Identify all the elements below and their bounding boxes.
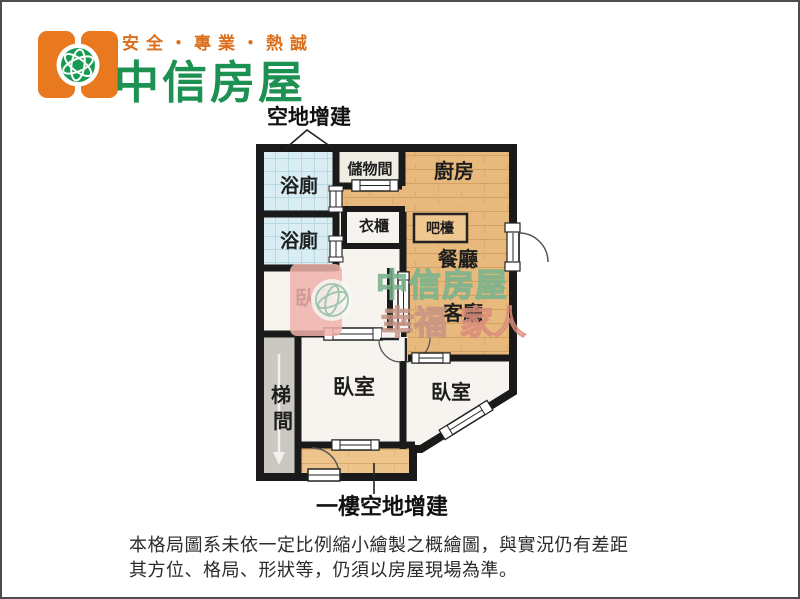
watermark-slogan-left: 幸福: [381, 304, 447, 341]
room-label-storage: 儲物間: [347, 160, 392, 178]
screenshot-root: 安全・專業・熱誠 中信房屋: [0, 0, 800, 599]
watermark-globe-bg: [311, 279, 353, 321]
bedroom3-top-window: [412, 353, 450, 363]
room-label-bath1: 浴廁: [280, 174, 318, 197]
disclaimer-line-2: 其方位、格局、形狀等，仍須以房屋現場為準。: [129, 558, 749, 583]
room-label-bar: 吧檯: [426, 220, 454, 236]
room-label-stair-1: 梯: [271, 383, 291, 407]
room-label-bedroom2: 臥室: [333, 375, 375, 399]
room-label-kitchen: 廚房: [434, 159, 474, 183]
room-label-bedroom3: 臥室: [431, 380, 471, 404]
room-label-closet: 衣櫃: [359, 217, 389, 235]
annotation-top-label: 空地增建: [267, 105, 351, 129]
floorplan-drawing: 空地增建 一樓空地增建 浴廁 儲物間 廚房 浴廁 衣櫃 吧檯 餐廳 臥室 客廳 …: [2, 2, 800, 599]
room-label-stair-2: 間: [273, 410, 293, 433]
watermark-brand-text: 中信房屋: [376, 267, 508, 303]
dining-entry-door: [505, 223, 548, 271]
annotation-bottom-label: 一樓空地增建: [316, 494, 448, 519]
storage-window: [352, 180, 398, 191]
bathroom2-door: [329, 236, 343, 262]
disclaimer: 本格局圖系未依一定比例縮小繪製之概繪圖，與實況仍有差距 其方位、格局、形狀等，仍…: [129, 533, 749, 583]
disclaimer-line-1: 本格局圖系未依一定比例縮小繪製之概繪圖，與實況仍有差距: [129, 533, 749, 558]
bathroom1-door: [329, 186, 343, 212]
bedroom2-bottom-window: [332, 440, 379, 450]
watermark: 中信房屋 幸福 家人: [290, 264, 526, 341]
watermark-slogan-right: 家人: [460, 304, 526, 341]
room-label-bath2: 浴廁: [280, 229, 318, 252]
